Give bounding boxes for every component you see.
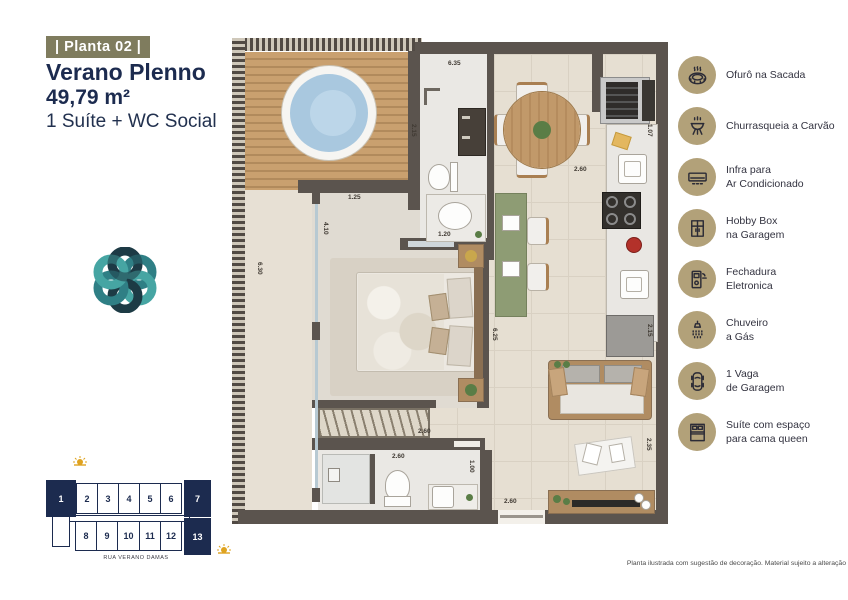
suite-toilet-bowl [428,164,450,190]
wc-door-gap [454,441,480,447]
knot-logo-icon [92,247,158,313]
bed-pillow [447,325,474,367]
amenity-label: Hobby Box na Garagem [726,214,784,242]
stove-burner [624,213,636,225]
vanity-plant [475,231,482,238]
brand-knot-logo [92,247,158,313]
bed-duvet [358,274,444,370]
gas-shower-icon [678,311,716,349]
tv [572,500,640,507]
cabinet-handle [462,136,470,139]
balcony-glass-door [315,197,318,497]
amenity-label: Ofurô na Sacada [726,68,805,82]
building-diagram: 1 2 3 4 5 6 7 8 9 10 11 12 13 RUA VERANO… [44,455,254,575]
sofa-plant [554,361,561,368]
shower-knob [328,468,340,482]
coffee-table-book [609,443,626,463]
amenity-row: Suíte com espaço para cama queen [678,413,843,451]
dim-label: 2.60 [504,498,517,505]
dim-label: 6.25 [491,328,498,341]
amenity-row: Churrasqueia a Carvão [678,107,843,145]
kitchen-sink-basin [624,161,641,177]
amenity-label: Churrasqueia a Carvão [726,119,835,133]
glass-door-frame-top [312,190,320,204]
dim-label: 2.15 [410,124,417,137]
sun-icon [72,455,88,467]
red-pot [626,237,642,253]
unit-box-13: 13 [184,518,211,555]
unit-box-4: 4 [118,483,140,514]
queen-bed-icon [678,413,716,451]
sofa-plant [563,361,570,368]
dim-label: 2.15 [646,324,653,337]
dim-label: 2.35 [645,438,652,451]
unit-box-1: 1 [46,480,76,517]
entry-door-leaf [500,515,543,518]
amenity-row: Infra para Ar Condicionado [678,158,843,196]
plan-badge: | Planta 02 | [46,36,150,58]
unit-box-11: 11 [139,521,161,551]
dim-label: 2.60 [392,453,405,460]
dim-label: 1.00 [468,460,475,473]
wall-closet-top [312,400,436,408]
unit-box-7: 7 [184,480,211,517]
amenity-row: Ofurô na Sacada [678,56,843,94]
glass-door-frame-bottom [312,488,320,502]
unit-box-6: 6 [160,483,182,514]
bar-chair [527,263,549,291]
service-sink-basin [626,277,642,292]
hot-tub-seat [310,90,356,136]
cabinet-handle [462,116,470,119]
table-plant [533,121,551,139]
unit-box-2: 2 [76,483,98,514]
railing-left [232,38,245,524]
amenity-row: Chuveiro a Gás [678,311,843,349]
disclaimer-text: Planta ilustrada com sugestão de decoraç… [627,560,846,567]
console-decor [641,500,651,510]
unit-box-12: 12 [160,521,182,551]
stove-burner [624,196,636,208]
bed-pillow [447,277,474,319]
dim-label: 4.10 [322,222,329,235]
shower-pipe [424,91,427,105]
unit-box-3: 3 [97,483,119,514]
parking-car-icon [678,362,716,400]
wall-top [415,42,668,54]
building-core [52,515,70,547]
wc-toilet-tank [384,496,411,507]
console-plant [563,498,570,505]
dim-label: 1.20 [438,231,451,238]
street-label: RUA VERANO DAMAS [96,555,176,561]
closet-hangers [318,408,430,438]
amenity-row: Fechadura Eletronica [678,260,843,298]
glass-door-frame-mid [312,322,320,340]
unit-box-10: 10 [117,521,140,551]
place-setting [502,261,520,277]
amenity-row: 1 Vaga de Garagem [678,362,843,400]
bar-chair [527,217,549,245]
dim-label: 2.60 [418,428,431,435]
accent-pillow [428,327,449,355]
dim-label: 1.07 [646,124,653,137]
amenity-label: Fechadura Eletronica [726,265,776,293]
suite-basin [438,202,472,230]
amenity-label: Chuveiro a Gás [726,316,768,344]
dim-label: 6.35 [448,60,461,67]
floor-plan: 6.35 2.15 1.07 2.60 1.25 1.20 4.10 6.30 … [232,32,668,528]
grill-grate [606,82,638,119]
amenity-label: Infra para Ar Condicionado [726,163,804,191]
dim-label: 6.30 [256,262,263,275]
amenity-label: 1 Vaga de Garagem [726,367,784,395]
unit-box-9: 9 [96,521,118,551]
accent-pillow [428,293,449,321]
wall-bath-right [487,54,494,260]
console-plant [553,495,561,503]
unit-area: 49,79 m² [46,86,130,110]
sun-icon [216,543,232,555]
stove-burner [606,213,618,225]
unit-box-5: 5 [139,483,161,514]
stove-burner [606,196,618,208]
headboard [474,266,483,378]
nightstand-lamp [465,250,477,262]
breakfast-bar [495,193,527,317]
wall-wc-right [480,450,492,510]
unit-box-8: 8 [75,521,97,551]
wc-shower-divider [370,454,375,504]
wc-sink [432,486,454,508]
unit-subtitle: 1 Suíte + WC Social [46,111,217,133]
railing-top [238,38,422,51]
wc-plant [466,494,473,501]
amenities-list: Ofurô na Sacada Churrasqueia a Carvão In… [678,56,843,464]
electronic-lock-icon [678,260,716,298]
dim-label: 1.25 [348,194,361,201]
place-setting [502,215,520,231]
hot-tub-icon [678,56,716,94]
hobby-box-icon [678,209,716,247]
suite-toilet-tank [450,162,458,192]
air-conditioner-icon [678,158,716,196]
amenity-label: Suíte com espaço para cama queen [726,418,810,446]
dim-label: 2.60 [574,166,587,173]
page-title: Verano Plenno [46,59,206,86]
charcoal-grill-icon [678,107,716,145]
nightstand-plant [465,384,477,396]
kitchen-tall-cabinet [642,80,655,121]
amenity-row: Hobby Box na Garagem [678,209,843,247]
